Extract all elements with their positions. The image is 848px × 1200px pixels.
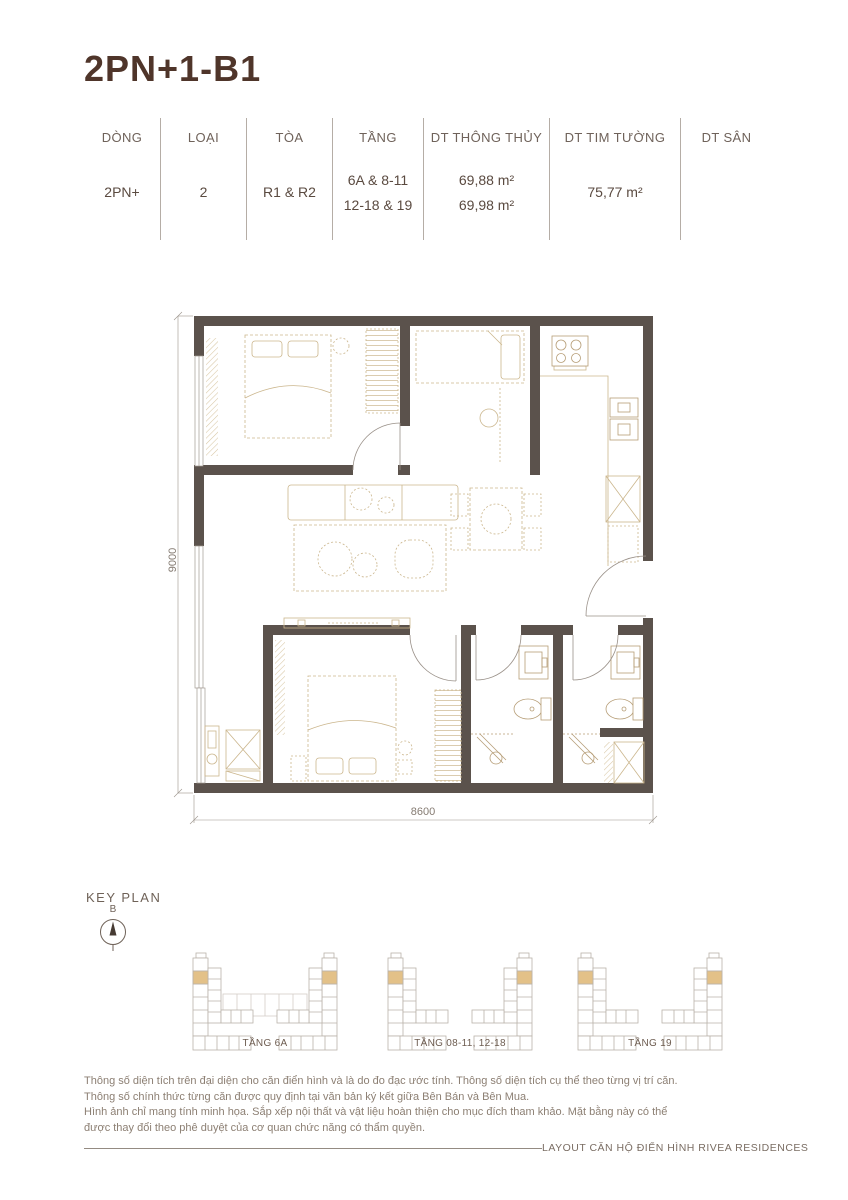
spec-header: TÒA	[247, 118, 332, 154]
fridge-x	[606, 476, 640, 522]
wardrobe-2	[435, 690, 461, 781]
disclaimer: Thông số diện tích trên đại diện cho căn…	[84, 1074, 714, 1136]
side-table	[398, 760, 412, 774]
coffee-table	[318, 542, 352, 576]
wardrobe-1	[366, 329, 398, 413]
pillow	[349, 758, 376, 774]
layout-caption: LAYOUT CĂN HỘ ĐIỂN HÌNH RIVEA RESIDENCES	[542, 1142, 808, 1154]
caption-divider	[84, 1148, 542, 1149]
compass-needle	[110, 922, 117, 936]
spec-col-dt-tim-tuong: DT TIM TƯỜNG 75,77 m²	[549, 118, 680, 240]
lamp	[398, 741, 412, 755]
curtain-hatch	[275, 640, 285, 735]
spec-value: 69,98 m²	[424, 197, 549, 213]
spec-value: 6A & 8-11	[333, 172, 423, 188]
pillow	[288, 341, 318, 357]
dimension-width-label: 8600	[411, 806, 435, 818]
unit-spec-table: DÒNG 2PN+ LOẠI 2 TÒA R1 & R2 TẦNG 6A & 8…	[84, 118, 766, 240]
washer-x	[226, 730, 260, 769]
spec-col-dt-thong-thuy: DT THÔNG THỦY 69,88 m² 69,98 m²	[423, 118, 549, 240]
spec-value: R1 & R2	[247, 184, 332, 200]
spec-col-dong: DÒNG 2PN+	[84, 118, 160, 240]
keyplan-tang-6a	[193, 953, 337, 1050]
floor-plan: 9000 8600	[148, 298, 688, 843]
plan-windows	[195, 356, 205, 783]
spec-header: DT TIM TƯỜNG	[550, 118, 680, 154]
keyplan-tang-19	[578, 953, 722, 1050]
spec-value: 2PN+	[84, 184, 160, 200]
bottom-caption-row: LAYOUT CĂN HỘ ĐIỂN HÌNH RIVEA RESIDENCES	[84, 1138, 766, 1158]
page-title: 2PN+1-B1	[84, 48, 261, 90]
kitchen-sink	[610, 398, 638, 417]
fold	[488, 331, 502, 345]
keyplan-label-tang-08-18: TẦNG 08-11, 12-18	[370, 1038, 550, 1049]
door-bedroom1	[353, 423, 400, 470]
disclaimer-line: Thông số chính thức từng căn được quy đị…	[84, 1090, 714, 1106]
pillow	[501, 335, 520, 379]
cabinet	[608, 526, 638, 562]
spec-col-tang: TẦNG 6A & 8-11 12-18 & 19	[332, 118, 423, 240]
plan-doors	[353, 423, 646, 681]
blanket	[245, 386, 331, 398]
curtain-hatch	[206, 338, 218, 456]
bed-multipurpose	[416, 331, 524, 383]
spec-header: DT THÔNG THỦY	[424, 118, 549, 154]
spec-col-dt-san: DT SÂN	[680, 118, 772, 240]
rug	[294, 525, 446, 591]
spec-value: 2	[161, 184, 246, 200]
toilet	[606, 699, 634, 719]
shower-head	[582, 752, 594, 764]
door-bath1	[476, 635, 521, 680]
side-table	[291, 756, 306, 781]
toilet	[514, 699, 542, 719]
chair	[451, 528, 468, 550]
disclaimer-line: được thay đổi theo phê duyệt của cơ quan…	[84, 1121, 714, 1137]
chair	[524, 528, 541, 550]
spec-col-loai: LOẠI 2	[160, 118, 246, 240]
compass-label: B	[110, 904, 117, 915]
dining-table	[470, 488, 522, 550]
chair	[524, 494, 541, 516]
chair	[451, 494, 468, 516]
laundry-sink	[205, 726, 219, 776]
plan-dimensions	[174, 312, 657, 824]
spec-header: DÒNG	[84, 118, 160, 154]
kitchen-counter	[540, 376, 608, 566]
plant	[350, 488, 372, 510]
spec-header: LOẠI	[161, 118, 246, 154]
door-entry	[586, 556, 646, 616]
stove	[552, 336, 588, 366]
sofa	[288, 485, 458, 520]
spec-header: TẦNG	[333, 118, 423, 154]
pillow	[252, 341, 282, 357]
basin	[519, 646, 548, 679]
spec-value: 12-18 & 19	[333, 197, 423, 213]
side-table	[333, 338, 349, 354]
door-bedroom2	[410, 635, 456, 681]
spec-col-toa: TÒA R1 & R2	[246, 118, 332, 240]
pillow	[316, 758, 343, 774]
spec-value: 75,77 m²	[550, 184, 680, 200]
plant	[378, 497, 394, 513]
blanket	[308, 720, 396, 730]
coffee-table	[353, 553, 377, 577]
spec-value: 69,88 m²	[424, 172, 549, 188]
plan-walls	[194, 316, 653, 793]
keyplan-label-tang-6a: TẦNG 6A	[175, 1038, 355, 1049]
keyplan-label-tang-19: TẦNG 19	[560, 1038, 740, 1049]
disclaimer-line: Thông số diện tích trên đại diện cho căn…	[84, 1074, 714, 1090]
armchair	[395, 540, 433, 578]
dimension-height-label: 9000	[167, 548, 179, 572]
disclaimer-line: Hình ảnh chỉ mang tính minh họa. Sắp xếp…	[84, 1105, 714, 1121]
bed-2	[308, 676, 396, 781]
desk-chair	[480, 409, 498, 427]
stove-base	[554, 366, 586, 370]
keyplan-tang-08-18	[388, 953, 532, 1050]
spec-header: DT SÂN	[681, 118, 772, 154]
shower-head	[490, 752, 502, 764]
dining-decor	[481, 504, 511, 534]
